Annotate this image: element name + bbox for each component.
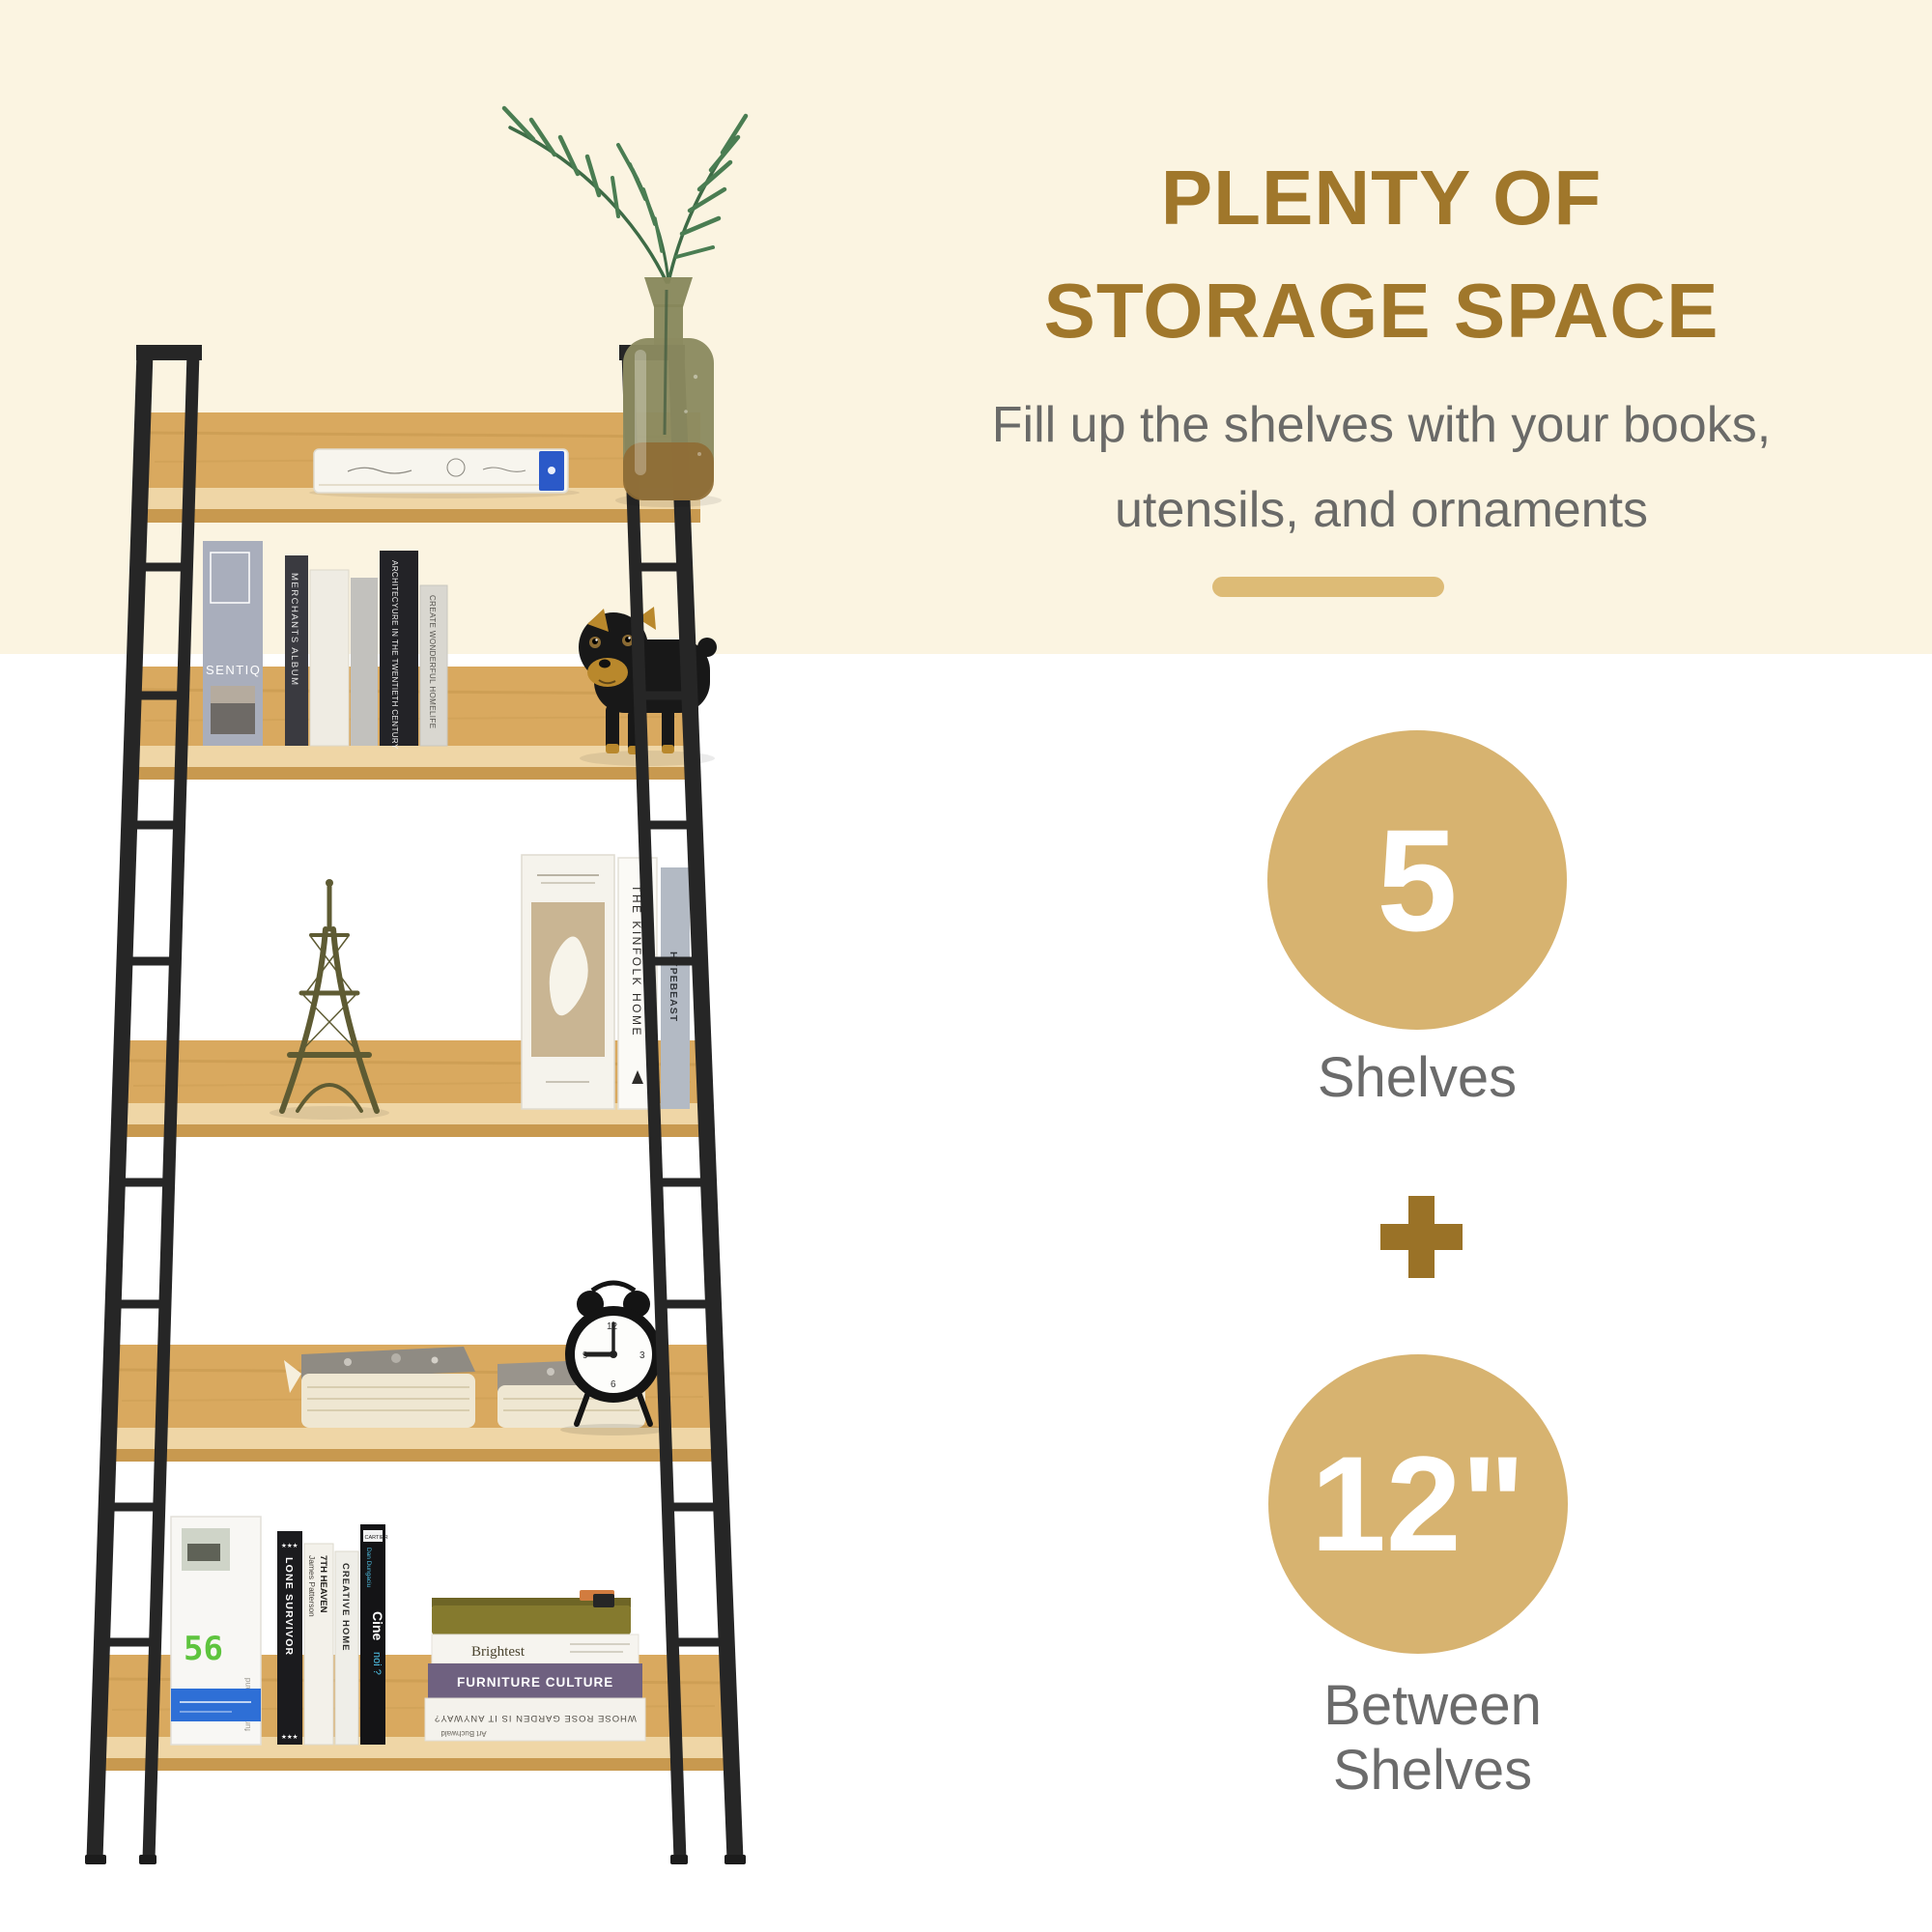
book-create: CREATE WONDERFUL HOMELIFE: [428, 595, 437, 728]
stat-value-spacing: 12": [1311, 1426, 1525, 1582]
book-architecture: ARCHITECYURE IN THE TWENTIETH CENTURY: [390, 560, 399, 750]
headline-line2: STORAGE SPACE: [908, 254, 1855, 367]
book-whose-rose: WHOSE ROSE GARDEN IS IT ANYWAY?: [434, 1713, 637, 1723]
shelf5-standing-books: furniture brand 56 ★★★ LONE SURVIVOR ★★★…: [171, 1517, 388, 1745]
plus-icon: [1380, 1196, 1463, 1278]
book-heaven: 7TH HEAVEN: [318, 1555, 328, 1613]
stat-circle-spacing: 12": [1268, 1354, 1568, 1654]
flat-book: [309, 449, 580, 498]
glass-vase: [615, 277, 722, 507]
subheadline-line2: utensils, and ornaments: [908, 468, 1855, 553]
stat-value-shelves: 5: [1377, 797, 1457, 964]
shelf2-books: SENTIQ MERCHANTS ALBUM ARCHITECYURE IN T…: [203, 541, 447, 750]
plus-icon-bar-vertical: [1408, 1196, 1435, 1278]
shelf3-books: THE KINFOLK HOME HYPEBEAST: [522, 855, 690, 1109]
clock-3: 3: [639, 1350, 645, 1361]
book-brightest: Brightest: [471, 1644, 526, 1660]
book-dan-dungaciu: Dan Dungaciu: [365, 1548, 372, 1588]
book-lone-survivor: LONE SURVIVOR: [283, 1557, 295, 1656]
clock-6: 6: [611, 1379, 616, 1390]
book-art-buchwald: Art Buchwald: [440, 1729, 486, 1738]
led-display: 56: [184, 1630, 223, 1668]
stat-label-spacing: Between Shelves: [1239, 1673, 1626, 1803]
ladder-shelf-illustration: SENTIQ MERCHANTS ALBUM ARCHITECYURE IN T…: [58, 48, 792, 1884]
palm-plant: [504, 108, 746, 282]
book-merchants: MERCHANTS ALBUM: [289, 573, 299, 687]
book-noi: noi ?: [371, 1652, 383, 1675]
stat-label-shelves: Shelves: [1272, 1045, 1562, 1110]
book-patterson: James Patterson: [307, 1555, 317, 1617]
book-sentiq: SENTIQ: [206, 663, 261, 677]
gold-divider: [1212, 577, 1444, 597]
headline-line1: PLENTY OF: [908, 141, 1855, 254]
stars-bottom: ★★★: [281, 1733, 298, 1741]
book-furniture-culture: FURNITURE CULTURE: [457, 1675, 613, 1690]
label-cartier: CARTIER: [365, 1535, 388, 1541]
stars-top: ★★★: [281, 1542, 298, 1549]
book-creative-home: CREATIVE HOME: [340, 1563, 351, 1651]
headline: PLENTY OF STORAGE SPACE: [908, 141, 1855, 367]
shelf-board-3: [120, 1040, 705, 1137]
product-infographic: SENTIQ MERCHANTS ALBUM ARCHITECYURE IN T…: [0, 0, 1932, 1932]
shelf5-book-stack: Brightest FURNITURE CULTURE WHOSE ROSE G…: [425, 1590, 645, 1741]
stat-circle-shelves: 5: [1267, 730, 1567, 1030]
subheadline-line1: Fill up the shelves with your books,: [908, 383, 1855, 468]
subheadline: Fill up the shelves with your books, ute…: [908, 383, 1855, 553]
product-photo: SENTIQ MERCHANTS ALBUM ARCHITECYURE IN T…: [58, 48, 792, 1884]
book-cine: Cine: [370, 1611, 385, 1641]
